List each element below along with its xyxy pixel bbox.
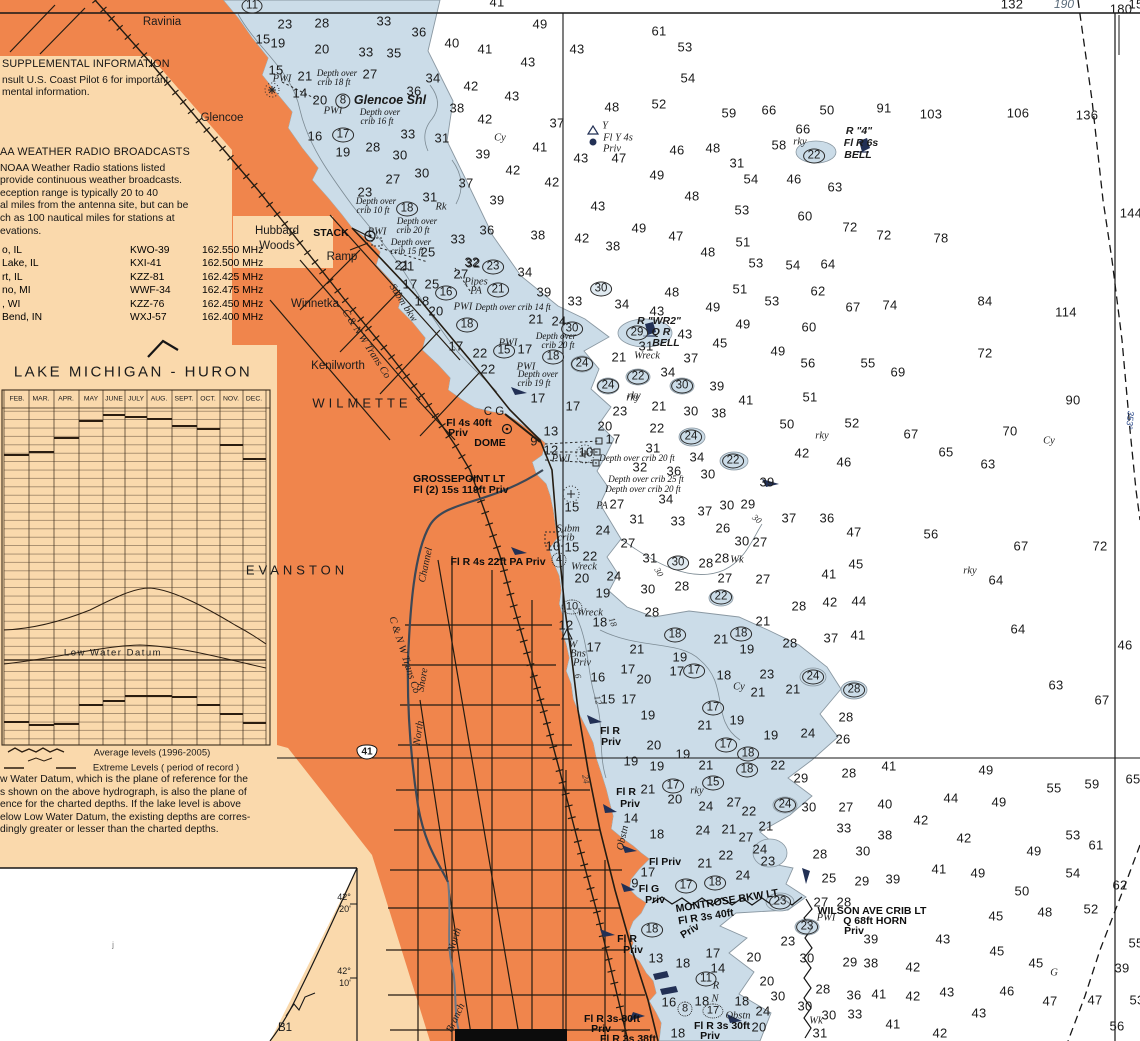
map-label: 45 [848, 557, 863, 572]
map-label: 72 [977, 346, 992, 361]
map-label: 52 [651, 97, 666, 112]
map-label: 51 [732, 282, 747, 297]
map-label: Priv [448, 427, 468, 439]
map-label: 22 [722, 454, 744, 469]
map-label: 22 [627, 370, 649, 385]
map-label: 28 [644, 605, 659, 620]
map-label: 24 [580, 774, 591, 785]
map-label: Fl R 3s 38ft [600, 1033, 656, 1041]
map-label: 41 [738, 393, 753, 408]
map-label: 42 [956, 831, 971, 846]
map-label: 18 [716, 668, 731, 683]
map-label: 22 [710, 590, 732, 605]
nautical-chart: SUPPLEMENTAL INFORMATION nsult U.S. Coas… [0, 0, 1140, 1041]
map-label: j [112, 941, 114, 950]
map-label: PA [596, 501, 607, 512]
map-label: 14 [292, 86, 307, 101]
map-label: 47 [846, 525, 861, 540]
map-label: 54 [743, 172, 758, 187]
map-label: Obstn [615, 825, 631, 852]
map-label: 30 [719, 498, 734, 513]
map-label: 66 [761, 103, 776, 118]
map-label: 32 [464, 255, 479, 270]
map-label: 24 [774, 798, 796, 813]
hydrograph-month-label: JUNE [105, 396, 123, 403]
map-label: 91 [876, 101, 891, 116]
map-label: 62 [1112, 878, 1127, 893]
map-label: 19 [595, 586, 610, 601]
map-label: 41 [871, 987, 886, 1002]
map-label: Depth over crib 25 ft [608, 474, 684, 484]
map-label: 62 [810, 284, 825, 299]
map-label: 37 [697, 504, 712, 519]
map-label: 39 [489, 193, 504, 208]
map-label: crib 16 ft [361, 116, 394, 126]
map-label: 55 [1046, 781, 1061, 796]
map-label: 37 [549, 116, 564, 131]
map-label: 33 [400, 127, 415, 142]
hydrograph-month-label: SEPT. [175, 396, 194, 403]
map-label: 20 [759, 974, 774, 989]
map-label: 31 [629, 512, 644, 527]
map-label: 46 [786, 172, 801, 187]
map-label: Priv [601, 736, 621, 748]
map-label: Depth over crib 14 ft [475, 302, 551, 312]
map-label: 36 [406, 84, 421, 99]
map-label: 10 [578, 445, 593, 460]
map-label: 42 [463, 79, 478, 94]
map-label: 49 [770, 344, 785, 359]
map-label: 23 [759, 667, 774, 682]
map-label: 21 [640, 782, 655, 797]
map-label: 30 [652, 566, 665, 579]
map-label: 41 [356, 745, 377, 760]
map-label: Priv [844, 925, 864, 937]
map-label: 48 [664, 285, 679, 300]
map-label: 16 [307, 129, 322, 144]
hydrograph-month-label: MAY [84, 396, 98, 403]
map-label: Wreck [634, 351, 660, 362]
map-label: Rk [435, 202, 446, 213]
map-label: 43 [569, 42, 584, 57]
map-label: PWI [454, 302, 473, 313]
map-label: Winnetka [291, 298, 339, 310]
map-label: 8 [677, 1002, 692, 1017]
map-label: Low Water Datum [64, 648, 162, 659]
map-label: 27 [362, 67, 377, 82]
map-label: 20 [636, 672, 651, 687]
map-label: 43 [520, 55, 535, 70]
map-label: 20 [574, 571, 589, 586]
map-label: 19 [729, 713, 744, 728]
map-label: Branch [444, 1002, 467, 1035]
map-label: 27 [755, 572, 770, 587]
map-label: 55 [860, 356, 875, 371]
map-label: 16 [590, 670, 605, 685]
map-label: PWI [817, 913, 836, 924]
map-label: 70 [1002, 424, 1017, 439]
map-label: 67 [845, 300, 860, 315]
map-label: 43 [590, 199, 605, 214]
map-label: 43 [935, 932, 950, 947]
map-label: 9 [631, 876, 639, 891]
map-label: 61 [651, 24, 666, 39]
map-label: 24 [680, 430, 702, 445]
map-label: 22 [770, 758, 785, 773]
map-label: 20 [751, 1020, 766, 1035]
map-label: 47 [668, 229, 683, 244]
map-label: 28 [815, 982, 830, 997]
map-label: 27 [838, 800, 853, 815]
map-label: 18 [607, 616, 619, 628]
map-label: 42 [505, 163, 520, 178]
map-label: 42 [574, 231, 589, 246]
map-label: North [412, 720, 426, 746]
map-label: 41 [931, 862, 946, 877]
map-label: rky [793, 137, 806, 148]
map-label: 38 [530, 228, 545, 243]
map-label: 17 [620, 662, 635, 677]
map-label: 41 [821, 567, 836, 582]
map-label: 59 [721, 106, 736, 121]
map-label: 103 [920, 107, 943, 122]
map-label: 28 [791, 599, 806, 614]
map-label: 18 [456, 318, 478, 333]
map-label: 17 [530, 391, 545, 406]
map-label: 30 [414, 166, 429, 181]
map-label: 19 [672, 650, 687, 665]
map-label: 22 [803, 149, 825, 164]
map-label: 11 [242, 0, 263, 14]
map-label: 42 [932, 1026, 947, 1041]
map-label: 30 [734, 534, 749, 549]
map-label: 13 [648, 951, 663, 966]
map-label: 6 [573, 673, 584, 680]
map-label: 50 [1014, 884, 1029, 899]
map-label: 23 [760, 854, 775, 869]
map-label: 66 [795, 122, 810, 137]
map-label: 20 [667, 792, 682, 807]
map-label: 41 [477, 42, 492, 57]
map-label: 49 [1026, 844, 1041, 859]
map-label: 30 [671, 379, 693, 394]
map-label: 37 [823, 631, 838, 646]
map-label: 56 [800, 356, 815, 371]
map-label: North [446, 927, 464, 954]
map-label: 18 [414, 294, 429, 309]
map-label: 36 [411, 25, 426, 40]
map-label: 53 [734, 203, 749, 218]
map-label: 21 [611, 350, 626, 365]
map-label: 21 [297, 69, 312, 84]
map-label: 18 [592, 615, 607, 630]
map-label: rky [626, 393, 639, 404]
map-label: 24 [698, 799, 713, 814]
map-labels-layer: 1123283341613640414943435354132190180151… [0, 0, 1140, 1041]
map-label: 23 [796, 920, 818, 935]
map-label: 58 [771, 138, 786, 153]
map-label: 45 [989, 944, 1004, 959]
map-label: 33 [567, 294, 582, 309]
map-label: 63 [827, 180, 842, 195]
map-label: 36 [846, 988, 861, 1003]
map-label: 33 [670, 514, 685, 529]
map-label: 42 [913, 813, 928, 828]
map-label: Depth over crib 20 ft [599, 453, 675, 463]
map-label: 17 [715, 738, 737, 753]
map-label: 37 [683, 351, 698, 366]
map-label: 28 [841, 766, 856, 781]
map-label: G [1050, 968, 1058, 979]
map-label: 20 [746, 950, 761, 965]
map-label: 54 [1065, 866, 1080, 881]
map-label: Fl R [616, 786, 636, 798]
map-label: 4 [551, 553, 566, 568]
map-label: 54 [785, 258, 800, 273]
map-label: 33 [376, 14, 391, 29]
map-label: crib 18 ft [318, 77, 351, 87]
map-label: 21 [487, 283, 509, 298]
map-label: 34 [517, 265, 532, 280]
map-label: 20 [646, 738, 661, 753]
hydrograph-month-label: DEC. [246, 396, 262, 403]
map-label: Depth over crib 20 ft [605, 484, 681, 494]
map-label: 13 [543, 424, 558, 439]
map-label: 72 [876, 228, 891, 243]
map-label: 42° [337, 892, 351, 902]
map-label: 40 [444, 36, 459, 51]
map-label: 21 [629, 642, 644, 657]
map-label: 17 [621, 692, 636, 707]
hydrograph-month-label: MAR. [33, 396, 50, 403]
map-label: Ravinia [143, 16, 181, 28]
map-label: 51 [802, 390, 817, 405]
map-label: 42 [822, 595, 837, 610]
map-label: 190 [1054, 0, 1074, 11]
map-label: crib 15 ft [391, 246, 424, 256]
map-label: 12 [558, 618, 573, 633]
map-label: 15 [600, 692, 615, 707]
map-label: 38 [605, 239, 620, 254]
map-label: BELL [652, 337, 679, 349]
map-label: 14 [623, 811, 638, 826]
map-label: 23 [482, 260, 504, 275]
hydrograph-month-label: APR. [58, 396, 74, 403]
map-label: 42 [477, 112, 492, 127]
map-label: rky [690, 786, 703, 797]
hydrograph-month-label: AUG. [151, 396, 168, 403]
map-label: 17 [683, 664, 705, 679]
map-label: 21 [750, 685, 765, 700]
map-label: 48 [705, 141, 720, 156]
map-label: 28 [782, 636, 797, 651]
map-label: 17 [402, 277, 417, 292]
map-label: 50 [779, 417, 794, 432]
map-label: 18 [730, 627, 752, 642]
map-label: 22 [649, 421, 664, 436]
map-label: 34 [660, 365, 675, 380]
map-label: 52 [1083, 902, 1098, 917]
map-label: 24 [802, 670, 824, 685]
map-label: 37 [458, 176, 473, 191]
map-label: 39 [709, 379, 724, 394]
map-label: 24 [695, 823, 710, 838]
map-label: 28 [714, 551, 729, 566]
map-label: 53 [764, 294, 779, 309]
map-label: 19 [640, 708, 655, 723]
map-label: 15 [1128, 0, 1140, 12]
map-label: 67 [1094, 693, 1109, 708]
map-label: 43 [971, 1006, 986, 1021]
map-label: 39 [1114, 961, 1129, 976]
map-label: 54 [680, 71, 695, 86]
map-label: 30 [700, 467, 715, 482]
map-label: 17 [565, 399, 580, 414]
map-label: LAKE MICHIGAN - HURON [14, 364, 252, 381]
map-label: Hubbard [255, 225, 299, 237]
map-label: 17 [702, 1004, 723, 1019]
map-label: 46 [999, 984, 1014, 999]
map-label: 28 [674, 579, 689, 594]
map-label: 33 [836, 821, 851, 836]
map-label: Fl (2) 15s 119ft Priv [413, 484, 508, 496]
map-label: Priv [620, 798, 640, 810]
map-label: 34 [425, 71, 440, 86]
map-label: 17 [332, 128, 354, 143]
map-label: 47 [1042, 994, 1057, 1009]
map-label: 23 [780, 934, 795, 949]
map-label: 48 [1037, 905, 1052, 920]
map-label: 40 [877, 797, 892, 812]
map-label: 27 [717, 571, 732, 586]
map-label: 30 [799, 951, 814, 966]
map-label: 55 [1128, 936, 1140, 951]
map-label: 74 [882, 298, 897, 313]
map-label: 38 [877, 828, 892, 843]
map-label: 59 [1084, 777, 1099, 792]
map-label: 132 [1001, 0, 1024, 12]
map-label: 46 [1117, 638, 1132, 653]
map-label: 45 [712, 336, 727, 351]
map-label: 49 [735, 317, 750, 332]
map-label: Cy [1043, 436, 1055, 447]
map-label: 48 [700, 245, 715, 260]
map-label: 27 [609, 497, 624, 512]
map-label: 17 [702, 701, 724, 716]
map-label: 18 [675, 956, 690, 971]
map-label: Wk [730, 555, 743, 566]
map-label: 18 [542, 350, 564, 365]
map-label: 27 [738, 830, 753, 845]
map-label: 27 [385, 172, 400, 187]
map-label: 37 [781, 511, 796, 526]
map-label: Priv [700, 1030, 720, 1041]
map-label: BELL [844, 149, 871, 161]
map-label: 27 [620, 536, 635, 551]
map-label: 30 [640, 582, 655, 597]
map-label: 46 [669, 143, 684, 158]
map-label: 28 [812, 847, 827, 862]
map-label: 21 [758, 819, 773, 834]
map-label: PWI [552, 454, 571, 465]
map-label: 33 [358, 45, 373, 60]
map-label: 35 [386, 46, 401, 61]
map-label: 21 [785, 682, 800, 697]
map-label: 65 [1125, 772, 1140, 787]
map-label: 19 [335, 145, 350, 160]
map-label: 22 [480, 362, 495, 377]
map-label: 34 [614, 297, 629, 312]
map-label: 43 [573, 151, 588, 166]
map-label: B1 [278, 1022, 292, 1034]
map-label: Channel [417, 546, 435, 583]
map-label: 19 [623, 754, 638, 769]
map-label: 30 [821, 1008, 836, 1023]
map-label: 30 [801, 800, 816, 815]
map-label: 42 [905, 989, 920, 1004]
hydrograph-month-label: JULY [128, 396, 144, 403]
map-label: 28 [365, 140, 380, 155]
map-label: 26 [835, 732, 850, 747]
map-label: 21 [697, 856, 712, 871]
map-label: 65 [938, 445, 953, 460]
map-label: 27 [726, 795, 741, 810]
map-label: 33 [450, 232, 465, 247]
map-label: 28 [698, 556, 713, 571]
map-label: 15 [564, 500, 579, 515]
hydrograph-month-label: OCT. [200, 396, 215, 403]
map-label: 25 [821, 871, 836, 886]
map-label: 49 [631, 221, 646, 236]
map-label: 17 [605, 432, 620, 447]
map-label: 39 [863, 932, 878, 947]
map-label: Priv [645, 894, 665, 906]
map-label: 21 [651, 399, 666, 414]
map-label: R "4" [846, 125, 872, 137]
map-label: Fl Y 4s [603, 133, 633, 144]
map-label: 30 [750, 512, 763, 525]
map-label: 21 [697, 718, 712, 733]
map-label: EVANSTON [246, 563, 348, 578]
map-label: 28 [314, 16, 329, 31]
map-label: 15 [564, 540, 579, 555]
map-label: 22 [472, 346, 487, 361]
map-label: crib 19 ft [518, 378, 551, 388]
map-label: 56 [923, 527, 938, 542]
map-label: 22 [741, 804, 756, 819]
map-label: 49 [978, 763, 993, 778]
map-label: 24 [597, 379, 619, 394]
map-label: 61 [1088, 838, 1103, 853]
map-label: 48 [684, 189, 699, 204]
map-label: Woods [259, 240, 295, 252]
map-label: 69 [890, 365, 905, 380]
map-label: 64 [988, 573, 1003, 588]
map-label: rky [815, 431, 828, 442]
map-label: 353° [1124, 410, 1136, 429]
map-label: 29 [842, 955, 857, 970]
map-label: 24 [755, 1004, 770, 1019]
map-label: 51 [735, 235, 750, 250]
map-label: 30 [590, 282, 612, 297]
map-label: 15 [493, 344, 515, 359]
map-label: 38 [449, 101, 464, 116]
map-label: 18 [670, 1026, 685, 1041]
map-label: 42 [794, 446, 809, 461]
map-label: 24 [800, 726, 815, 741]
map-label: 41 [489, 0, 504, 10]
map-label: 17 [705, 946, 720, 961]
